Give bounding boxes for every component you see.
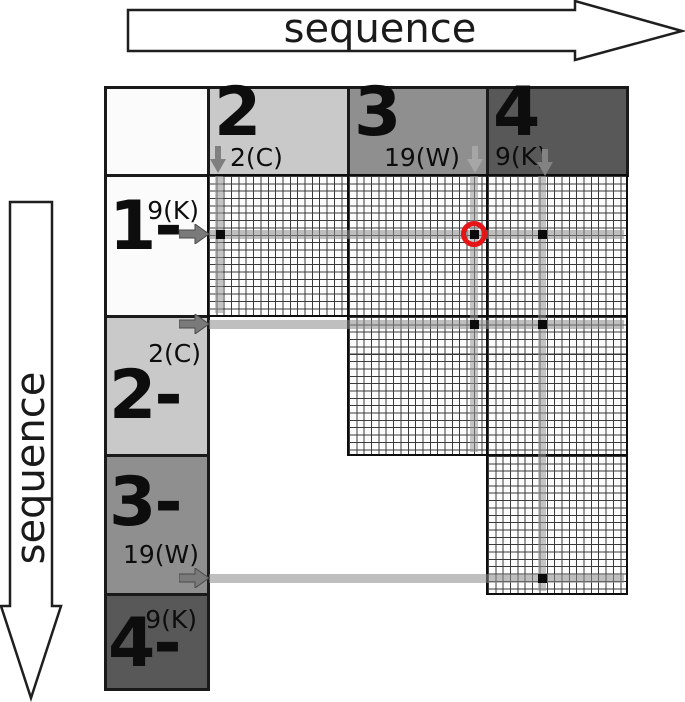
row-number: 3- [109, 469, 181, 537]
dotplot-block-1-2 [207, 174, 349, 317]
vertical-axis-label: sequence [9, 318, 53, 618]
row-header-2: 2- 2(C) [104, 315, 210, 457]
right-arrow-icon [179, 314, 209, 334]
row-annotation: 9(K) [145, 606, 197, 634]
column-header-4: 4 9(K) [486, 86, 629, 177]
dotplot-block-1-4 [486, 174, 628, 317]
right-arrow-icon [179, 224, 209, 244]
dotplot-block-2-3 [347, 315, 488, 456]
dotplot-figure: sequence sequence 2 2(C) 3 19(W) 4 9(K) … [0, 0, 685, 702]
row-header-4: 4- 9(K) [104, 593, 210, 691]
row-header-1: 1- 9(K) [104, 174, 210, 318]
horizontal-axis-label: sequence [155, 7, 605, 51]
column-number: 4 [493, 79, 538, 147]
down-arrow-icon [537, 149, 553, 177]
column-number: 3 [354, 79, 399, 147]
dotplot-block-1-3 [347, 174, 488, 317]
down-arrow-icon [210, 146, 226, 174]
row-annotation: 9(K) [147, 197, 199, 225]
row-annotation: 2(C) [148, 340, 201, 368]
column-annotation: 2(C) [230, 144, 283, 172]
column-number: 2 [214, 79, 259, 147]
corner-cell [104, 86, 210, 177]
column-header-2: 2 2(C) [207, 86, 350, 177]
dotplot-block-3-4 [486, 454, 628, 595]
down-arrow-icon [467, 146, 483, 174]
column-annotation: 19(W) [384, 144, 460, 172]
right-arrow-icon [179, 568, 209, 588]
row-number: 2- [109, 362, 181, 430]
dotplot-block-2-4 [486, 315, 628, 456]
row-annotation: 19(W) [123, 541, 199, 569]
